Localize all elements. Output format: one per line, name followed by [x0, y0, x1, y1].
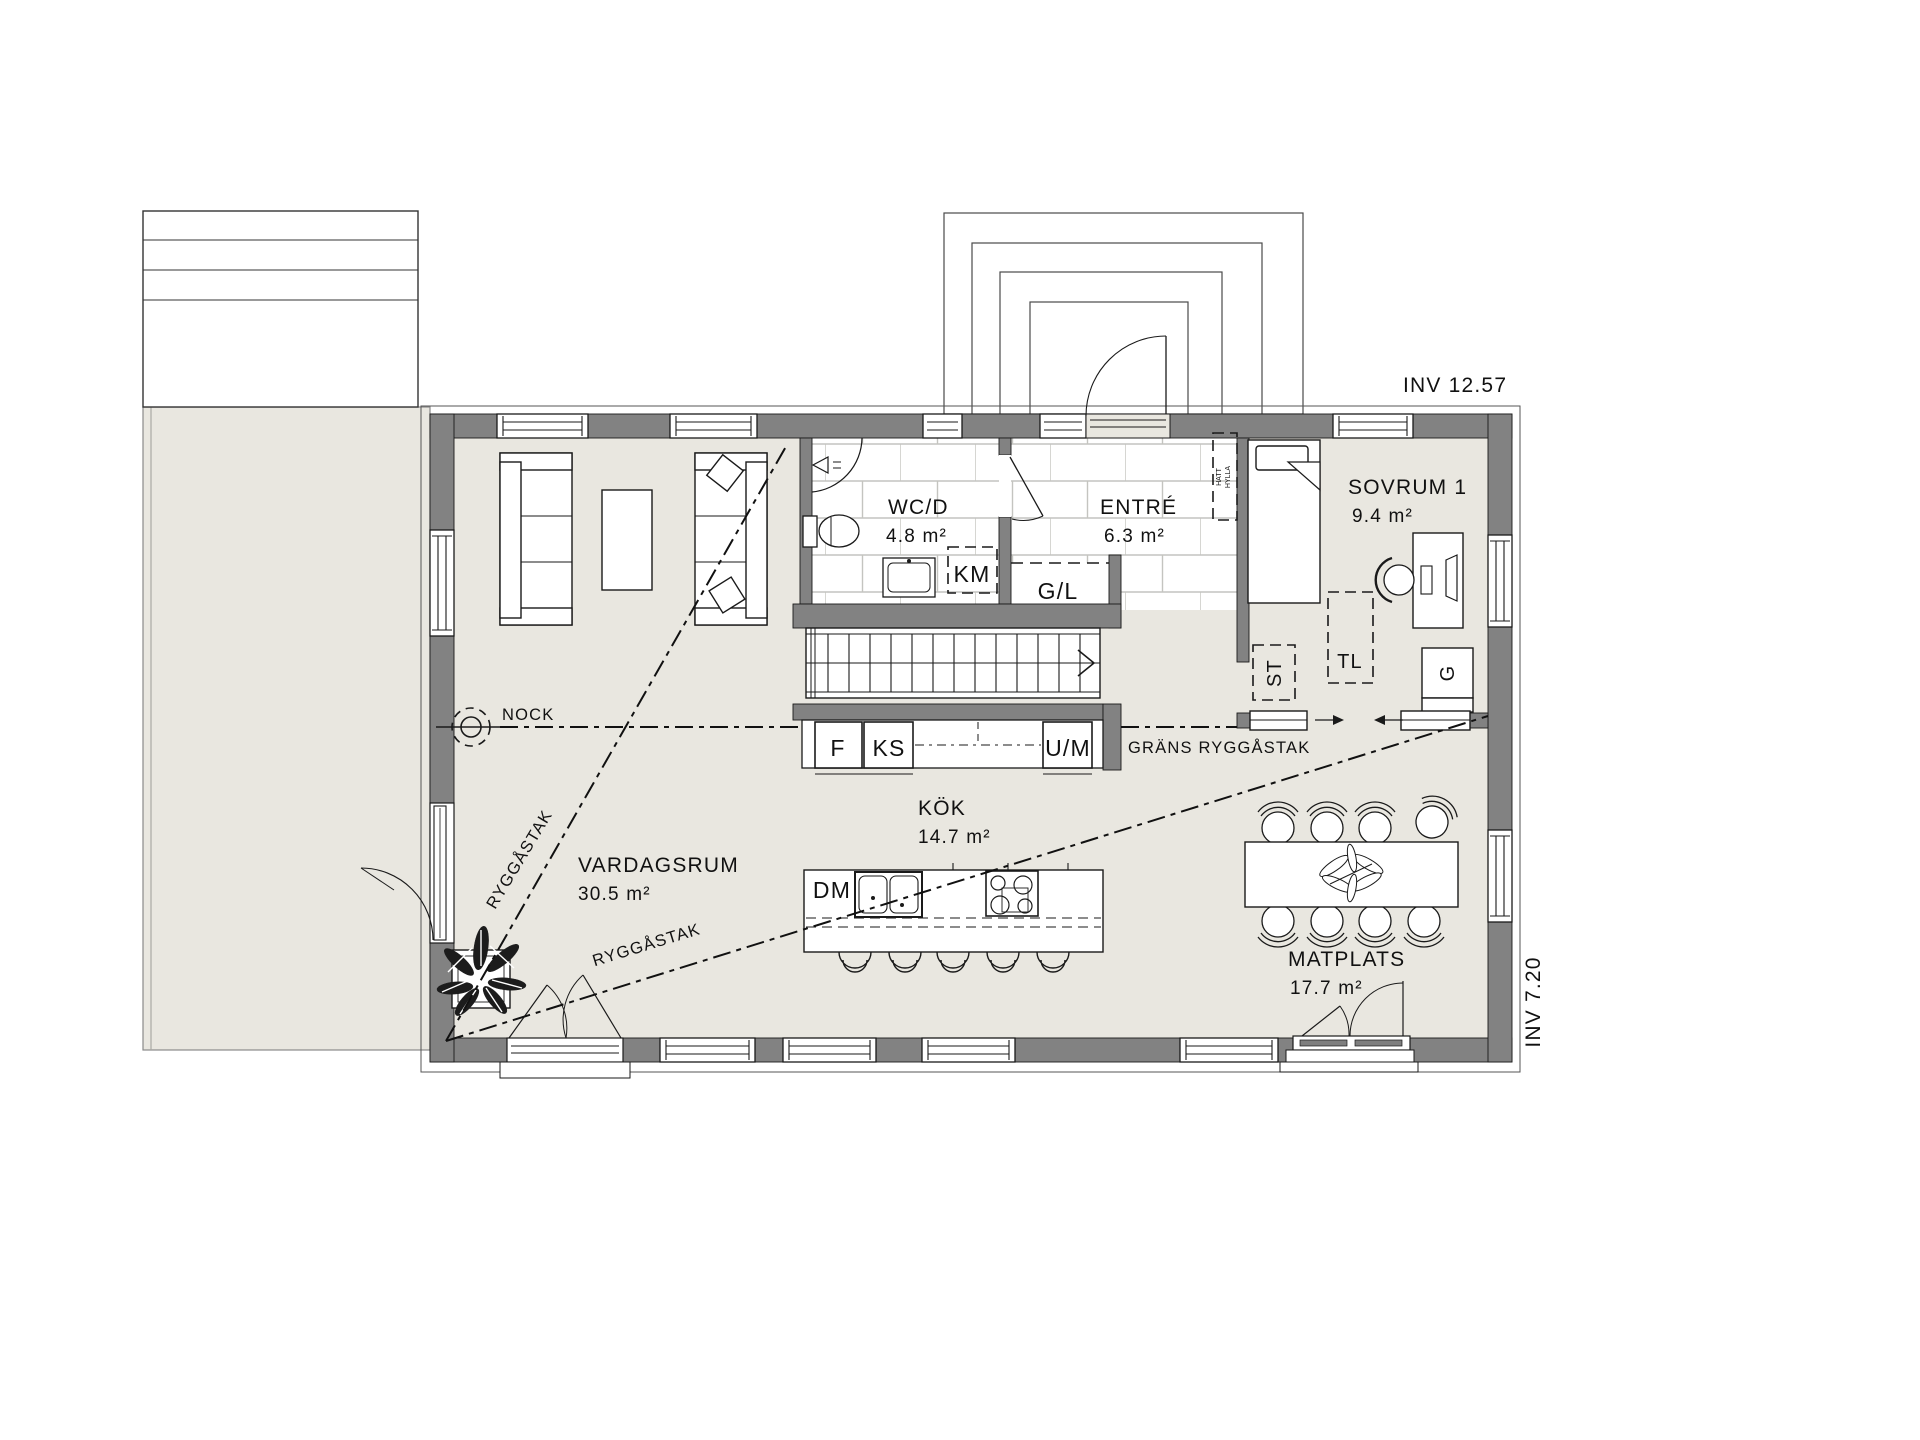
- room-label-entre: ENTRÉ: [1100, 496, 1177, 519]
- window: [783, 1038, 876, 1062]
- room-area-matplats: 17.7 m²: [1290, 978, 1363, 999]
- island-hob: [986, 871, 1038, 916]
- room-area-sovrum1: 9.4 m²: [1352, 506, 1413, 527]
- dim-inv-width: INV 12.57: [1403, 374, 1507, 397]
- fixture-label-freezer: KS: [872, 735, 905, 761]
- floorplan-page: HATT HYLLA: [0, 0, 1920, 1440]
- bed: [1248, 440, 1320, 603]
- hat-shelf-label-2: HYLLA: [1225, 466, 1232, 489]
- terrace: [143, 211, 430, 1050]
- desk: [1413, 533, 1463, 628]
- window-right-sovrum: [1488, 535, 1512, 627]
- window-left-living: [430, 530, 454, 636]
- coffee-table: [602, 490, 652, 590]
- toilet: [803, 515, 859, 547]
- hat-shelf-label-1: HATT: [1216, 467, 1223, 485]
- window: [923, 414, 962, 438]
- sofa-left: [500, 453, 572, 625]
- room-label-kok: KÖK: [918, 797, 966, 820]
- fixture-label-g: G: [1437, 665, 1459, 682]
- monitor: [1446, 555, 1457, 601]
- fixture-label-fridge: F: [830, 735, 845, 761]
- entrance-porch-steps: [944, 213, 1303, 414]
- window: [922, 1038, 1015, 1062]
- fixture-label-st: ST: [1264, 659, 1286, 687]
- fixture-label-km: KM: [954, 561, 991, 587]
- room-label-wcd: WC/D: [888, 496, 949, 519]
- room-label-sovrum1: SOVRUM 1: [1348, 476, 1467, 499]
- room-area-wcd: 4.8 m²: [886, 526, 947, 547]
- room-area-vardagsrum: 30.5 m²: [578, 884, 651, 905]
- sofa-right: [695, 453, 767, 625]
- room-area-entre: 6.3 m²: [1104, 526, 1165, 547]
- island-sink: [855, 872, 922, 917]
- annotation-grans-ryggastak: GRÄNS RYGGÅSTAK: [1128, 738, 1310, 757]
- room-label-matplats: MATPLATS: [1288, 948, 1405, 971]
- fixture-label-gl: G/L: [1038, 578, 1079, 604]
- windows-bottom: [660, 1038, 1278, 1062]
- window: [660, 1038, 755, 1062]
- window: [1180, 1038, 1278, 1062]
- floorplan-drawing: HATT HYLLA: [0, 0, 1920, 1440]
- annotation-nock: NOCK: [502, 706, 554, 724]
- fixture-label-dm: DM: [813, 877, 851, 903]
- window: [1040, 414, 1086, 438]
- window: [670, 414, 757, 438]
- fixture-label-oven-micro: U/M: [1045, 735, 1091, 761]
- window: [497, 414, 588, 438]
- staircase: [806, 628, 1100, 698]
- dim-inv-depth: INV 7.20: [1522, 956, 1545, 1047]
- washbasin: [883, 558, 935, 597]
- window-right-matplats: [1488, 830, 1512, 922]
- terrace-slab: [143, 407, 430, 1050]
- room-label-vardagsrum: VARDAGSRUM: [578, 854, 739, 877]
- window: [1333, 414, 1413, 438]
- room-area-kok: 14.7 m²: [918, 827, 991, 848]
- fixture-label-tl: TL: [1337, 651, 1363, 673]
